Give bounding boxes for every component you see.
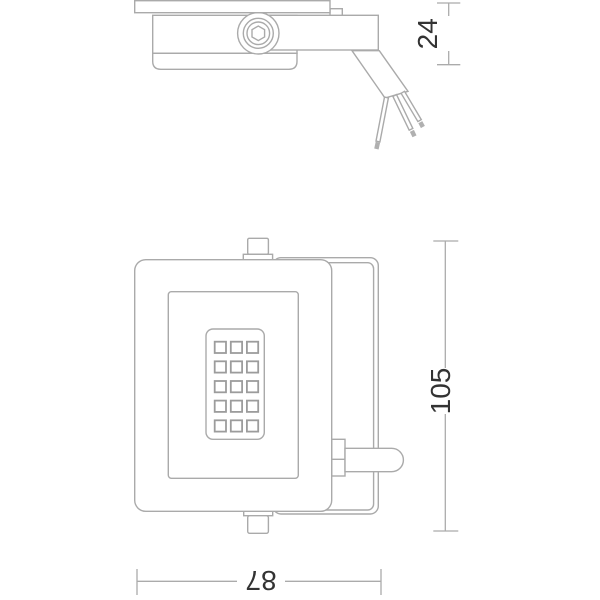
led-chip [215, 381, 226, 392]
wire-3-tip [420, 122, 423, 127]
floodlight-dimension-diagram: 24 105 87 [0, 0, 600, 600]
led-chip [215, 420, 226, 431]
led-chip [215, 342, 226, 353]
led-chip [247, 420, 258, 431]
side-profile-view [135, 1, 423, 149]
lens-underside [153, 53, 297, 69]
wire-1 [376, 97, 388, 142]
bottom-mount-knob [248, 516, 269, 534]
dimension-height-label: 105 [425, 368, 456, 415]
led-chip [215, 401, 226, 412]
front-frame-edge [135, 1, 330, 13]
hex-socket-icon [252, 26, 265, 41]
dimension-width: 87 [137, 565, 381, 596]
dimension-width-label: 87 [245, 565, 276, 596]
led-chip [231, 381, 242, 392]
dimension-depth: 24 [412, 3, 460, 65]
power-wires [376, 91, 423, 149]
led-chip [231, 361, 242, 372]
front-view [135, 238, 404, 533]
technical-drawing-canvas: 24 105 87 [0, 0, 600, 600]
side-handle-arm [345, 448, 403, 471]
wire-2-tip [412, 131, 415, 136]
led-chip [231, 342, 242, 353]
led-chip [247, 401, 258, 412]
mounting-bracket-hinge [238, 13, 279, 54]
led-chip [247, 381, 258, 392]
power-cable-sheath [352, 51, 408, 98]
wire-1-tip [376, 142, 378, 149]
side-bracket-block [332, 439, 345, 476]
led-chip [247, 361, 258, 372]
side-tab-edge [330, 9, 342, 16]
led-chip [231, 420, 242, 431]
top-mount-knob [248, 238, 269, 254]
dimension-depth-label: 24 [412, 18, 443, 49]
dimension-height: 105 [425, 241, 458, 531]
led-chip [247, 342, 258, 353]
led-chip [215, 361, 226, 372]
led-chip [231, 401, 242, 412]
